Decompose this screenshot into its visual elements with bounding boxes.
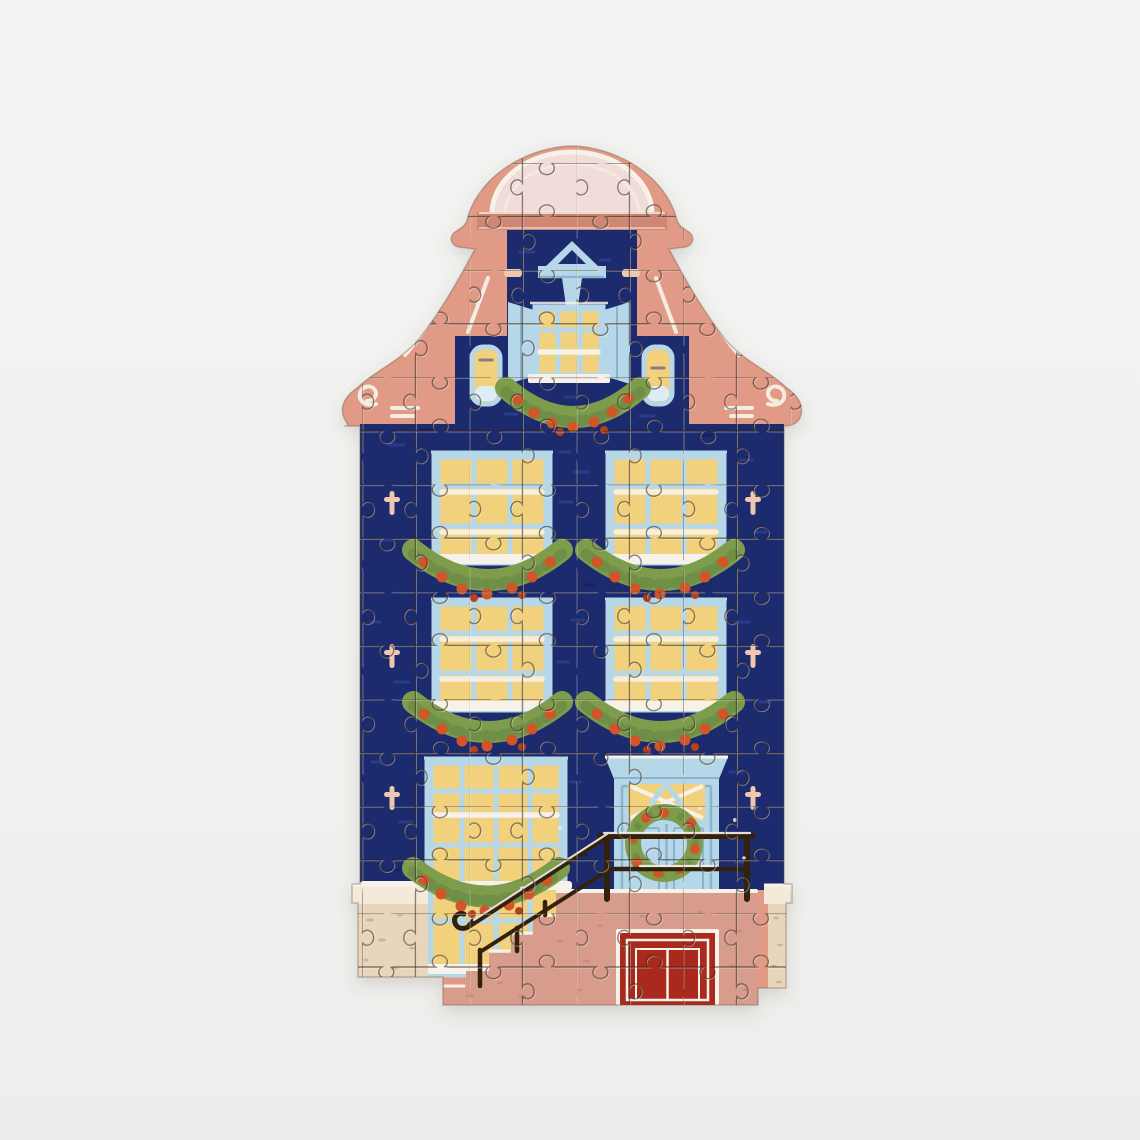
puzzle-scene xyxy=(0,0,1140,1140)
product-photo xyxy=(0,0,1140,1140)
puzzle-canal-house xyxy=(330,136,810,1020)
jigsaw-cut-lines xyxy=(330,136,810,1020)
